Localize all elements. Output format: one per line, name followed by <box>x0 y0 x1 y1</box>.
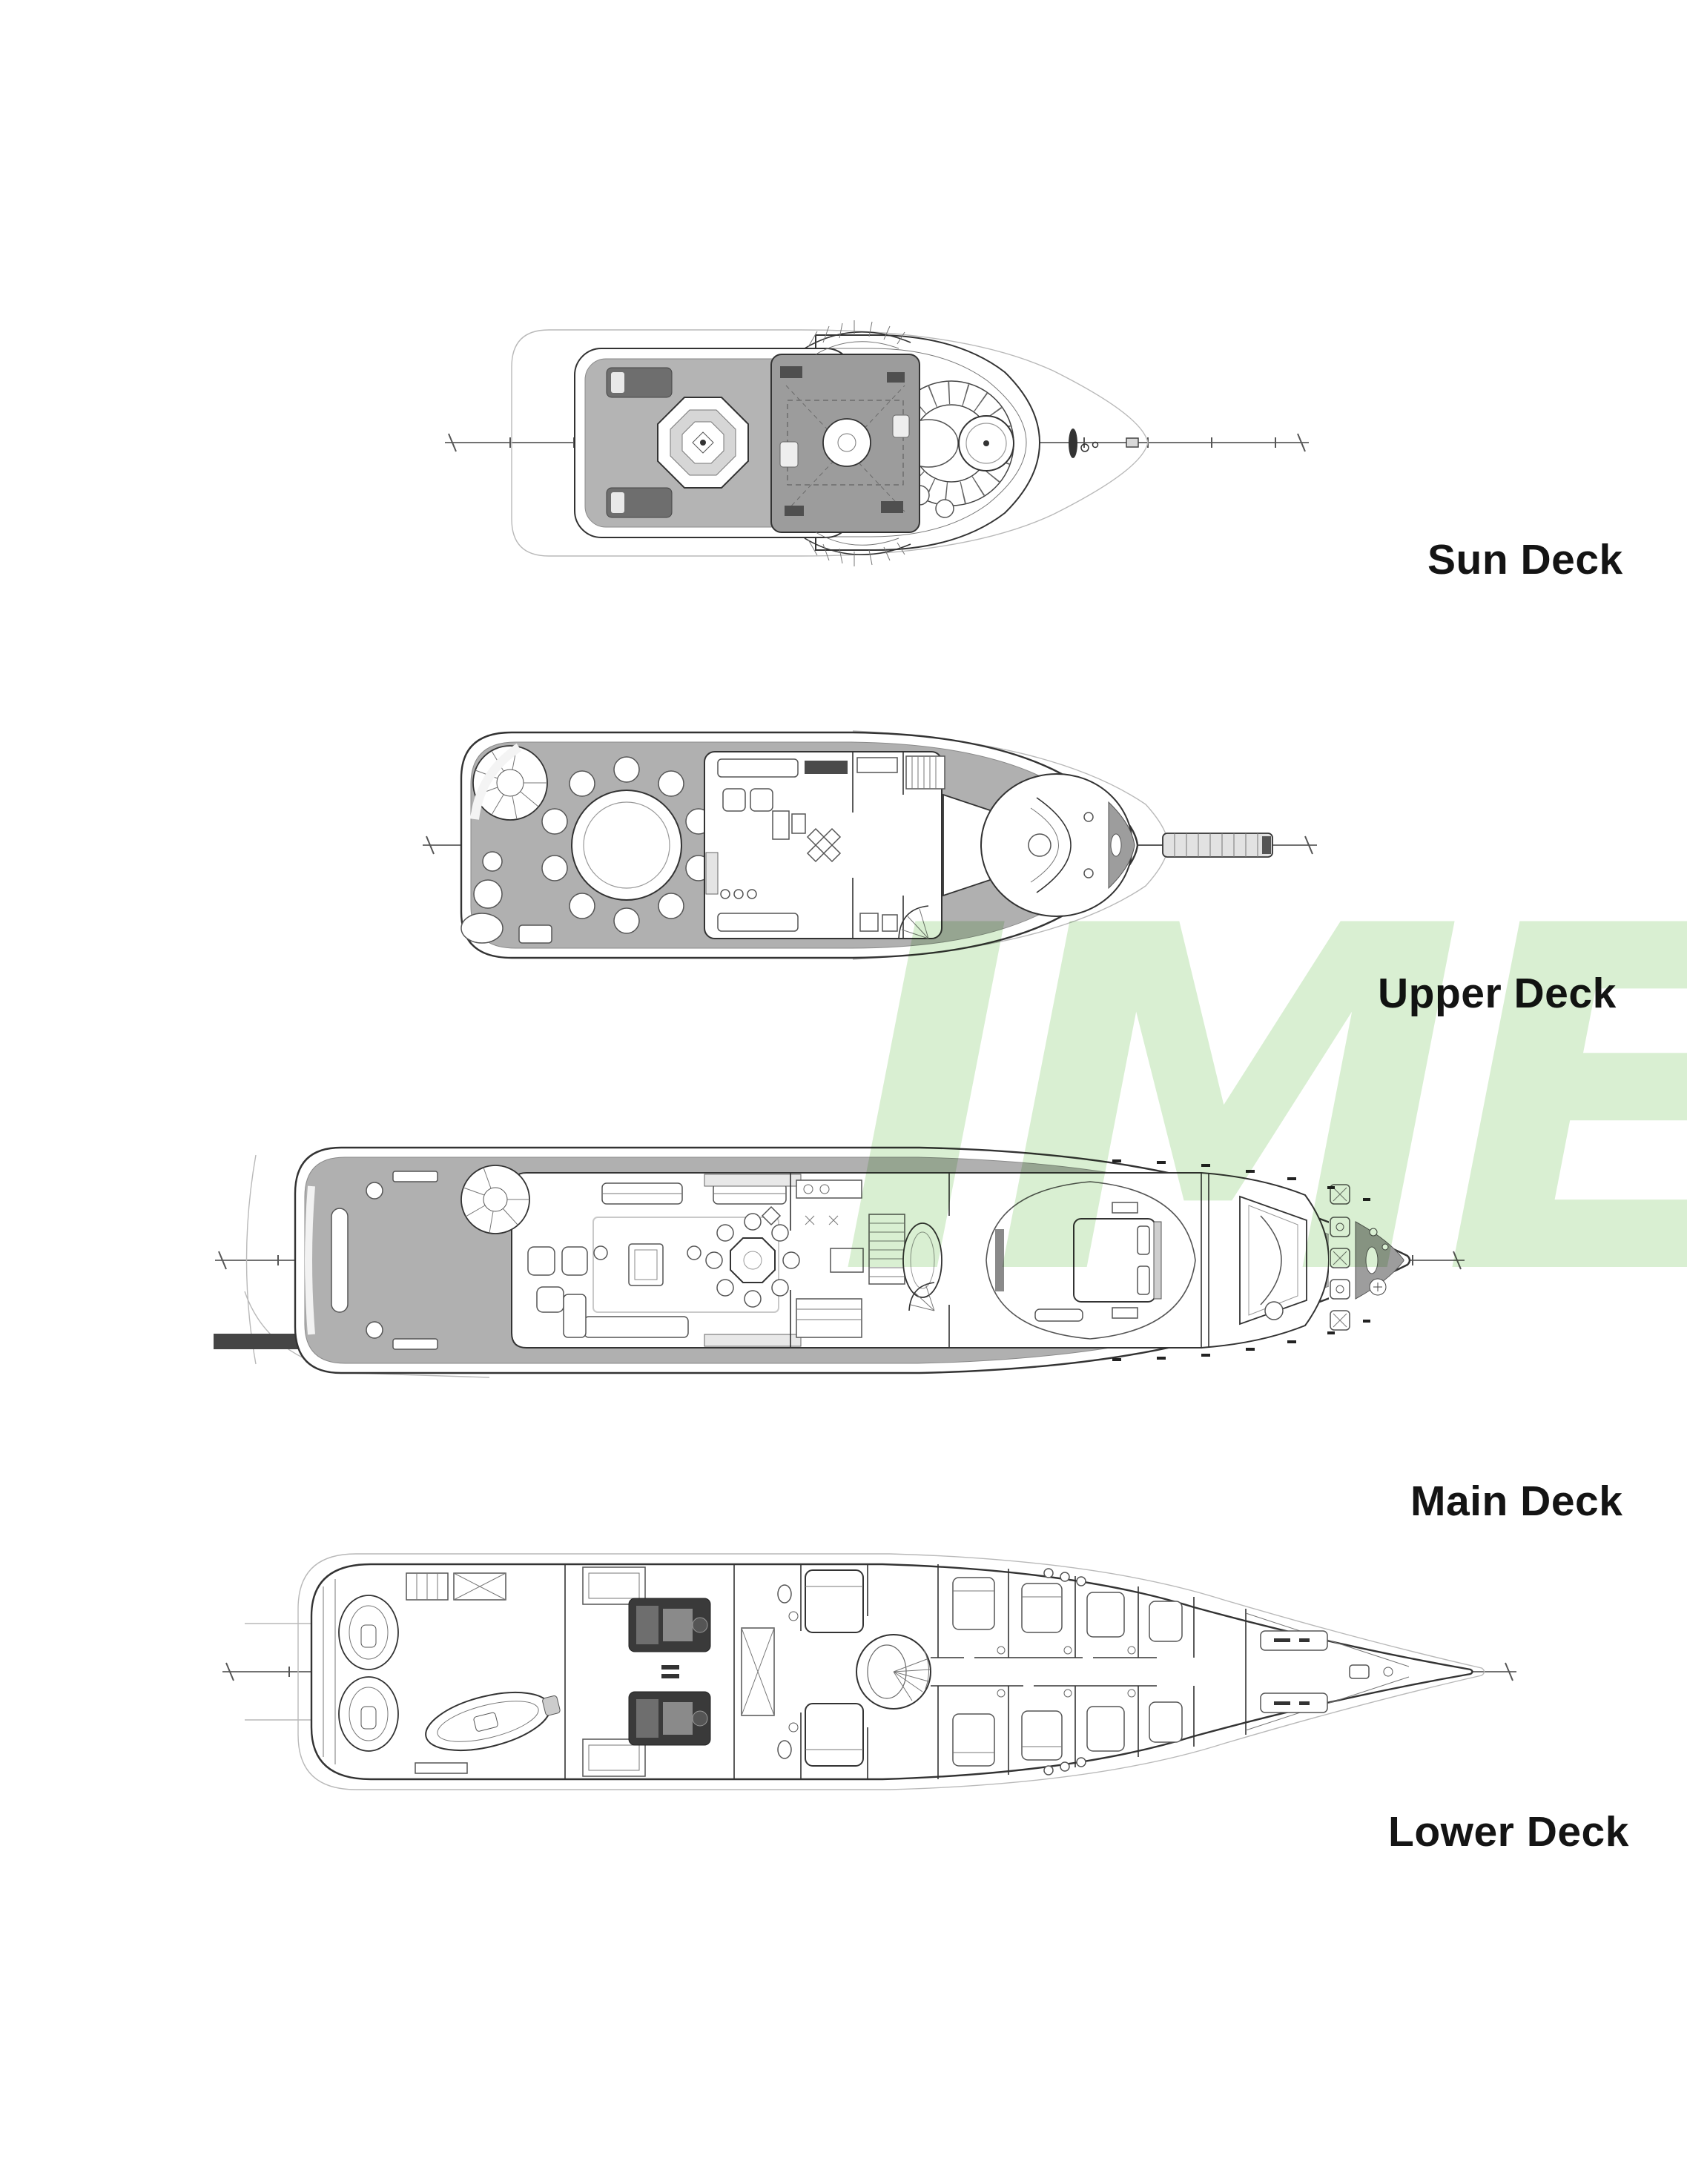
upper-deck-plan <box>423 731 1317 959</box>
helm-seat <box>1265 1302 1283 1320</box>
skylounge <box>704 752 945 939</box>
stair-lobby <box>856 1635 931 1709</box>
guest-bed <box>805 1704 863 1766</box>
sun-lounger <box>607 488 672 517</box>
crew-berth <box>1022 1711 1062 1760</box>
armchair <box>537 1287 564 1312</box>
sun-deck-plan <box>445 320 1309 566</box>
spa-pool <box>658 397 748 488</box>
staircase <box>869 1214 905 1284</box>
sun-lounger <box>607 368 672 397</box>
main-deck-plan <box>214 1148 1465 1377</box>
sun-deck-label: Sun Deck <box>1427 535 1623 584</box>
armchair <box>562 1247 587 1275</box>
crew-berth <box>953 1578 994 1629</box>
crew-berth <box>1149 1702 1182 1742</box>
jet-ski <box>339 1595 398 1670</box>
engine <box>629 1692 710 1745</box>
bow-gangway <box>1138 833 1272 857</box>
main-deck-label: Main Deck <box>1410 1477 1622 1526</box>
crew-berth <box>1087 1592 1124 1637</box>
crew-berth <box>953 1714 994 1766</box>
crew-berth <box>1022 1584 1062 1632</box>
yacht-deck-plans-page: Sun Deck Upper Deck Main Deck Lower Deck… <box>0 0 1687 2184</box>
mast-structure <box>771 354 920 532</box>
guest-bed <box>805 1570 863 1632</box>
lower-deck-plan <box>222 1554 1516 1790</box>
dining-table <box>706 1214 799 1307</box>
aft-table <box>331 1208 348 1312</box>
crew-berth <box>1149 1601 1182 1641</box>
windlass <box>1069 428 1138 458</box>
lower-deck-label: Lower Deck <box>1388 1807 1629 1856</box>
armchair <box>528 1247 555 1275</box>
sofa <box>584 1317 688 1337</box>
jet-ski <box>339 1677 398 1751</box>
deck-plan-drawings <box>0 0 1687 2184</box>
crew-berth <box>1087 1707 1124 1751</box>
upper-deck-label: Upper Deck <box>1378 969 1617 1018</box>
helm-seat <box>1029 834 1051 856</box>
engine <box>629 1598 710 1652</box>
